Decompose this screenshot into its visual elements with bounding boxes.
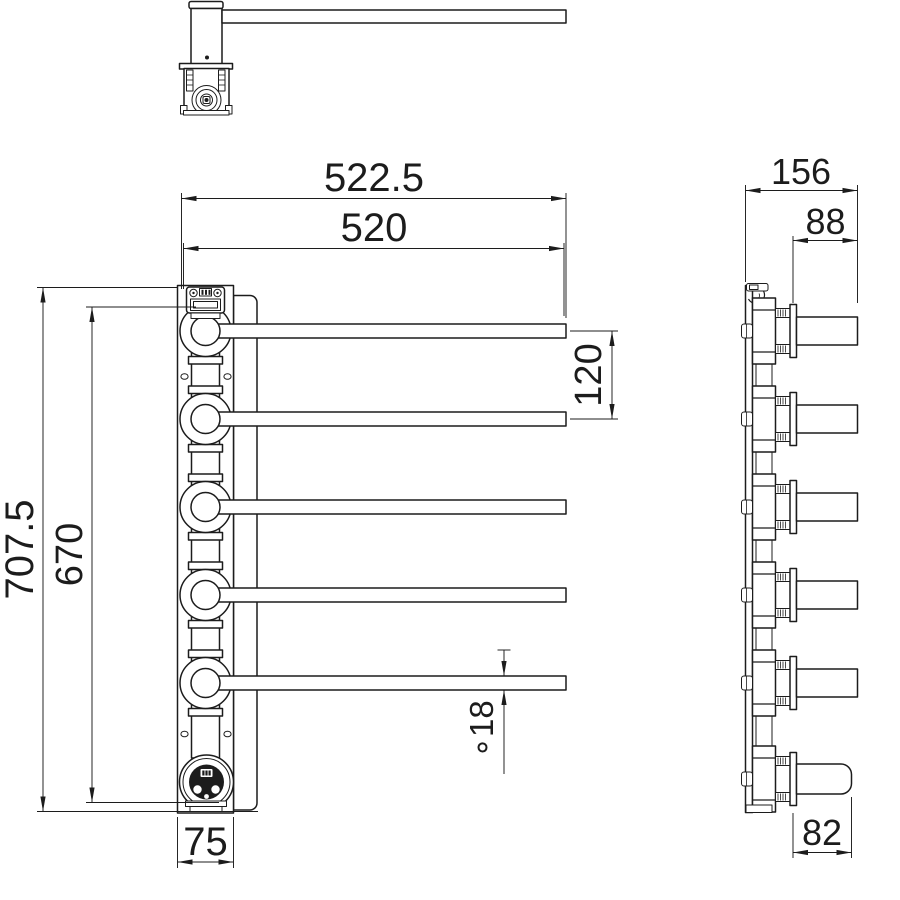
side-bar-2 [797, 405, 858, 433]
socket-pin-bottom [204, 794, 209, 799]
dim-bar-diameter: ∘18 [463, 650, 511, 774]
dim-bar-projection: 88 [793, 201, 858, 303]
slot-upper-left [181, 374, 188, 380]
pin-dot [205, 56, 209, 60]
socket-pin-left [193, 785, 201, 793]
dim-bar-projection-label: 88 [805, 201, 845, 242]
technical-drawing: 522.5 520 707.5 670 120 [0, 0, 900, 900]
front-view [178, 286, 567, 814]
dim-lower-projection: 82 [793, 797, 852, 858]
side-socket-housing [797, 764, 852, 794]
base-bar [184, 111, 230, 116]
power-socket [180, 755, 234, 812]
slot-lower-right [224, 731, 231, 737]
bottom-cap-side [746, 805, 772, 813]
dim-bar-length-label: 520 [341, 206, 408, 250]
dim-column-width-label: 75 [183, 820, 228, 864]
screw-channel-left [187, 70, 194, 91]
side-bar-3 [797, 493, 858, 521]
dim-overall-width-label: 522.5 [324, 156, 424, 200]
wall-plate-side [746, 286, 753, 813]
dim-bar-spacing-label: 120 [568, 343, 610, 406]
swivel-cap [189, 2, 223, 9]
top-view [180, 2, 567, 116]
dim-overall-depth-label: 156 [771, 151, 831, 192]
slot-lower-left [181, 731, 188, 737]
spacer-column-side [756, 302, 772, 805]
slot-upper-right [224, 374, 231, 380]
mounting-bracket-top [187, 287, 225, 319]
dim-lower-projection-label: 82 [802, 812, 842, 853]
drawing-canvas: 522.5 520 707.5 670 120 [0, 0, 900, 900]
side-view [742, 284, 858, 813]
socket-mount-foot [190, 807, 222, 812]
screw-channel-right [219, 70, 226, 91]
side-bar-1 [797, 317, 858, 345]
housing-profile [234, 296, 258, 811]
side-bar-5 [797, 669, 858, 697]
socket-pin-right [211, 785, 219, 793]
side-bar-4 [797, 581, 858, 609]
dim-pivot-span-label: 670 [49, 523, 91, 586]
dim-bar-diameter-label: ∘18 [463, 700, 500, 757]
dim-column-width: 75 [178, 817, 234, 868]
dim-overall-height-label: 707.5 [0, 499, 42, 599]
dim-bar-spacing: 120 [568, 331, 618, 419]
towel-bar-plan [222, 10, 566, 23]
socket-mount-plate [186, 801, 227, 807]
